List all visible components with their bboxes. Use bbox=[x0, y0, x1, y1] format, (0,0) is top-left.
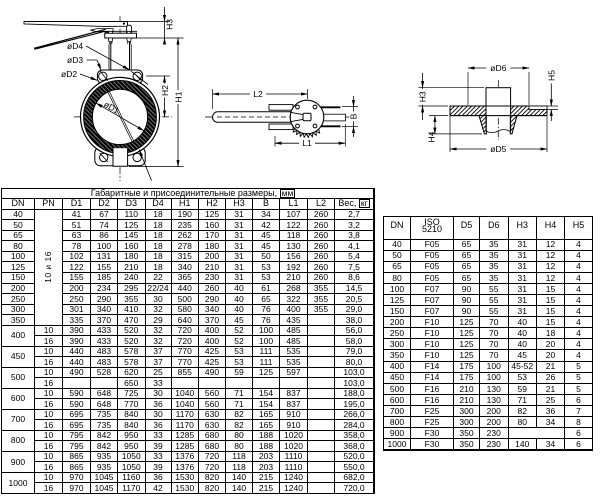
svg-text:H3: H3 bbox=[164, 19, 174, 30]
svg-text:H5: H5 bbox=[546, 70, 556, 81]
svg-text:øD6: øD6 bbox=[490, 63, 506, 73]
svg-text:H1: H1 bbox=[174, 91, 184, 102]
svg-text:B: B bbox=[349, 113, 359, 119]
svg-text:øD4: øD4 bbox=[67, 41, 83, 51]
svg-text:H3: H3 bbox=[418, 91, 428, 102]
svg-text:øD2: øD2 bbox=[61, 69, 77, 79]
svg-text:H2: H2 bbox=[160, 85, 170, 96]
svg-text:øD5: øD5 bbox=[490, 144, 506, 154]
svg-text:H4: H4 bbox=[427, 131, 437, 142]
svg-text:L2: L2 bbox=[253, 89, 263, 99]
svg-text:L1: L1 bbox=[302, 138, 312, 148]
svg-text:øD3: øD3 bbox=[67, 55, 83, 65]
